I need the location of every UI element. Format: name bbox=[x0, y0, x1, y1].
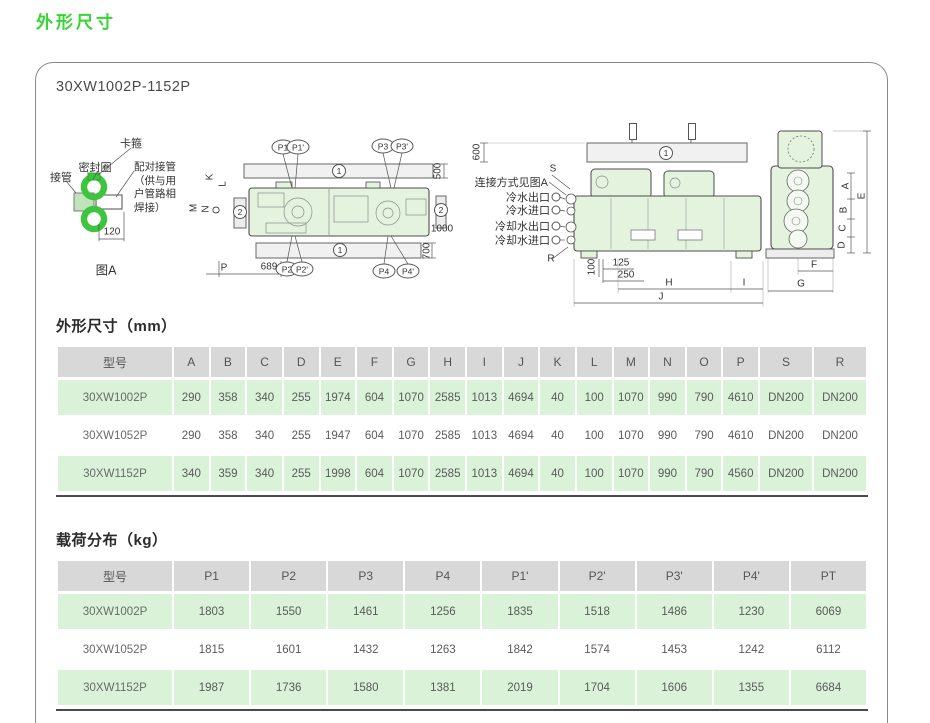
value-cell: DN200 bbox=[760, 380, 812, 415]
page-title: 外形尺寸 bbox=[36, 8, 116, 33]
value-cell: 2585 bbox=[430, 418, 465, 453]
load-point-p2p-callout: P2' bbox=[291, 262, 314, 277]
model-cell: 30XW1152P bbox=[58, 670, 172, 705]
value-cell: 40 bbox=[540, 380, 575, 415]
column-header: P bbox=[723, 347, 758, 377]
model-cell: 30XW1002P bbox=[58, 380, 172, 415]
catalog-page: 外形尺寸 30XW1002P-1152P bbox=[0, 0, 930, 723]
dim-letter-o: O bbox=[212, 206, 223, 214]
dim-letter-m: M bbox=[189, 204, 200, 212]
column-header: 型号 bbox=[58, 347, 172, 377]
value-cell: 100 bbox=[577, 418, 612, 453]
value-cell: 1013 bbox=[467, 380, 502, 415]
lifting-point-icon bbox=[629, 123, 637, 140]
dim-letter-j: J bbox=[659, 292, 664, 303]
value-cell: 1486 bbox=[637, 594, 712, 629]
value-cell: 358 bbox=[211, 418, 246, 453]
dim-letter-e: E bbox=[857, 193, 868, 200]
value-cell: 1070 bbox=[394, 456, 429, 491]
value-cell: DN200 bbox=[760, 456, 812, 491]
value-cell: 1835 bbox=[482, 594, 557, 629]
dim-letter-k: K bbox=[205, 174, 216, 181]
value-cell: 1947 bbox=[321, 418, 356, 453]
value-cell: 100 bbox=[577, 380, 612, 415]
value-cell: 6684 bbox=[791, 670, 866, 705]
column-header: P4 bbox=[405, 561, 480, 591]
value-cell: 990 bbox=[650, 418, 685, 453]
value-cell: 1355 bbox=[714, 670, 789, 705]
value-cell: 1263 bbox=[405, 632, 480, 667]
column-header: S bbox=[760, 347, 812, 377]
value-cell: 1070 bbox=[614, 456, 649, 491]
value-cell: 790 bbox=[687, 456, 722, 491]
value-cell: 6069 bbox=[791, 594, 866, 629]
value-cell: 1998 bbox=[321, 456, 356, 491]
column-header: P1' bbox=[482, 561, 557, 591]
column-header: P3' bbox=[637, 561, 712, 591]
dim-letter-i: I bbox=[743, 278, 746, 289]
column-header: P3 bbox=[328, 561, 403, 591]
column-header: A bbox=[174, 347, 209, 377]
column-header: N bbox=[650, 347, 685, 377]
rail-marker-icon: 1 bbox=[333, 243, 347, 257]
port-icon bbox=[552, 236, 561, 245]
value-cell: 255 bbox=[284, 456, 319, 491]
model-cell: 30XW1152P bbox=[58, 456, 172, 491]
dim-letter-f: F bbox=[811, 260, 817, 271]
value-cell: DN200 bbox=[814, 380, 866, 415]
dim-letter-l: L bbox=[218, 181, 229, 187]
value-cell: 1842 bbox=[482, 632, 557, 667]
value-cell: 4610 bbox=[723, 380, 758, 415]
dim-700-label: 700 bbox=[422, 243, 433, 260]
value-cell: 1070 bbox=[394, 380, 429, 415]
value-cell: 4610 bbox=[723, 418, 758, 453]
value-cell: 790 bbox=[687, 380, 722, 415]
value-cell: 1987 bbox=[174, 670, 249, 705]
dim-125-label: 125 bbox=[613, 258, 630, 269]
technical-drawing: 卡箍 密封圈 接管 配对接管 （供与用 户管路相 焊接） 120 图A P1 P… bbox=[36, 111, 887, 316]
value-cell: 4560 bbox=[723, 456, 758, 491]
dim-letter-r: R bbox=[547, 254, 554, 265]
dim-letter-c: C bbox=[838, 224, 849, 231]
dim-100-label: 100 bbox=[587, 259, 598, 276]
load-table: 型号P1P2P3P4P1'P2'P3'P4'PT30XW1002P1803155… bbox=[56, 558, 868, 711]
pad-marker-icon: 2 bbox=[434, 203, 448, 217]
column-header: P2' bbox=[560, 561, 635, 591]
table-row: 30XW1002P1803155014611256183515181486123… bbox=[58, 594, 866, 629]
value-cell: 340 bbox=[247, 418, 282, 453]
model-cell: 30XW1002P bbox=[58, 594, 172, 629]
cooling-water-inlet-label: 冷却水进口 bbox=[495, 232, 550, 248]
value-cell: 1606 bbox=[637, 670, 712, 705]
value-cell: 604 bbox=[357, 456, 392, 491]
column-header: R bbox=[814, 347, 866, 377]
column-header: L bbox=[577, 347, 612, 377]
value-cell: 1453 bbox=[637, 632, 712, 667]
table-row: 30XW1152P1987173615801381201917041606135… bbox=[58, 670, 866, 705]
dim-letter-g: G bbox=[797, 279, 805, 290]
clamp-label: 卡箍 bbox=[120, 135, 142, 151]
pad-marker-icon: 2 bbox=[233, 205, 247, 219]
column-header: O bbox=[687, 347, 722, 377]
value-cell: 1550 bbox=[251, 594, 326, 629]
dim-letter-a: A bbox=[841, 183, 852, 190]
figure-a-caption: 图A bbox=[96, 260, 117, 279]
rail-marker-icon: 1 bbox=[332, 164, 346, 178]
value-cell: 255 bbox=[284, 380, 319, 415]
dimensions-table-title: 外形尺寸（mm） bbox=[56, 315, 177, 336]
value-cell: 1256 bbox=[405, 594, 480, 629]
load-point-p1p-callout: P1' bbox=[287, 140, 310, 155]
dim-letter-n: N bbox=[201, 205, 212, 212]
value-cell: 255 bbox=[284, 418, 319, 453]
column-header: F bbox=[357, 347, 392, 377]
value-cell: 790 bbox=[687, 418, 722, 453]
value-cell: 100 bbox=[577, 456, 612, 491]
value-cell: 1815 bbox=[174, 632, 249, 667]
chilled-water-inlet-label: 冷水进口 bbox=[506, 202, 550, 218]
dim-letter-d: D bbox=[837, 241, 848, 248]
value-cell: 358 bbox=[211, 380, 246, 415]
port-icon bbox=[552, 206, 561, 215]
column-header: G bbox=[394, 347, 429, 377]
table-row: 30XW1052P2903583402551947604107025851013… bbox=[58, 418, 866, 453]
end-view-drawing bbox=[766, 131, 871, 293]
value-cell: 4694 bbox=[504, 456, 539, 491]
rail-marker-icon: 1 bbox=[659, 146, 673, 160]
port-icon bbox=[552, 193, 561, 202]
model-cell: 30XW1052P bbox=[58, 418, 172, 453]
value-cell: 1013 bbox=[467, 418, 502, 453]
column-header: B bbox=[211, 347, 246, 377]
column-header: PT bbox=[791, 561, 866, 591]
pipe-label: 接管 bbox=[50, 169, 72, 185]
model-range-label: 30XW1002P-1152P bbox=[56, 79, 191, 95]
value-cell: 2019 bbox=[482, 670, 557, 705]
load-point-p4-callout: P4 bbox=[373, 264, 396, 279]
value-cell: 340 bbox=[247, 380, 282, 415]
table-row: 30XW1052P1815160114321263184215741453124… bbox=[58, 632, 866, 667]
column-header: P4' bbox=[714, 561, 789, 591]
column-header: I bbox=[467, 347, 502, 377]
seal-ring-label: 密封圈 bbox=[79, 159, 112, 175]
value-cell: 1013 bbox=[467, 456, 502, 491]
value-cell: 40 bbox=[540, 418, 575, 453]
value-cell: 40 bbox=[540, 456, 575, 491]
column-header: P2 bbox=[251, 561, 326, 591]
dim-letter-s: S bbox=[550, 164, 557, 175]
load-table-grid: 型号P1P2P3P4P1'P2'P3'P4'PT30XW1002P1803155… bbox=[56, 558, 868, 708]
column-header: M bbox=[614, 347, 649, 377]
column-header: 型号 bbox=[58, 561, 172, 591]
column-header: D bbox=[284, 347, 319, 377]
dim-120-label: 120 bbox=[104, 227, 121, 238]
table-row: 30XW1002P2903583402551974604107025851013… bbox=[58, 380, 866, 415]
value-cell: 1230 bbox=[714, 594, 789, 629]
column-header: P1 bbox=[174, 561, 249, 591]
value-cell: 2585 bbox=[430, 456, 465, 491]
port-icon bbox=[552, 222, 561, 231]
value-cell: 1381 bbox=[405, 670, 480, 705]
value-cell: 1432 bbox=[328, 632, 403, 667]
value-cell: 1736 bbox=[251, 670, 326, 705]
dim-250-label: 250 bbox=[618, 270, 635, 281]
dim-letter-h: H bbox=[665, 278, 672, 289]
dim-500-label: 500 bbox=[433, 163, 444, 180]
load-point-p3p-callout: P3' bbox=[391, 139, 414, 154]
value-cell: 1070 bbox=[614, 418, 649, 453]
value-cell: 2585 bbox=[430, 380, 465, 415]
dim-1000-label: 1000 bbox=[431, 224, 453, 235]
value-cell: 4694 bbox=[504, 380, 539, 415]
content-panel: 30XW1002P-1152P bbox=[35, 62, 888, 723]
model-cell: 30XW1052P bbox=[58, 632, 172, 667]
value-cell: 1574 bbox=[560, 632, 635, 667]
column-header: C bbox=[247, 347, 282, 377]
value-cell: DN200 bbox=[814, 418, 866, 453]
value-cell: 1070 bbox=[394, 418, 429, 453]
value-cell: 340 bbox=[174, 456, 209, 491]
value-cell: 6112 bbox=[791, 632, 866, 667]
dim-600-label: 600 bbox=[472, 144, 483, 161]
value-cell: 1580 bbox=[328, 670, 403, 705]
value-cell: 290 bbox=[174, 418, 209, 453]
value-cell: 990 bbox=[650, 456, 685, 491]
value-cell: 1518 bbox=[560, 594, 635, 629]
connection-note-label: 连接方式见图A bbox=[475, 174, 548, 190]
load-point-p4p-callout: P4' bbox=[397, 264, 420, 279]
value-cell: DN200 bbox=[760, 418, 812, 453]
header-row: 型号ABCDEFGHIJKLMNOPSR bbox=[58, 347, 866, 377]
lifting-point-icon bbox=[688, 123, 696, 140]
value-cell: 290 bbox=[174, 380, 209, 415]
header-row: 型号P1P2P3P4P1'P2'P3'P4'PT bbox=[58, 561, 866, 591]
value-cell: 604 bbox=[357, 418, 392, 453]
dim-letter-b: B bbox=[839, 207, 850, 214]
value-cell: 359 bbox=[211, 456, 246, 491]
value-cell: 4694 bbox=[504, 418, 539, 453]
dim-letter-p: P bbox=[221, 263, 228, 274]
value-cell: 1803 bbox=[174, 594, 249, 629]
value-cell: 604 bbox=[357, 380, 392, 415]
value-cell: DN200 bbox=[814, 456, 866, 491]
column-header: K bbox=[540, 347, 575, 377]
value-cell: 1070 bbox=[614, 380, 649, 415]
dim-689-label: 689 bbox=[261, 262, 278, 273]
value-cell: 1704 bbox=[560, 670, 635, 705]
value-cell: 1461 bbox=[328, 594, 403, 629]
value-cell: 990 bbox=[650, 380, 685, 415]
load-table-title: 载荷分布（kg） bbox=[56, 529, 168, 550]
value-cell: 340 bbox=[247, 456, 282, 491]
dimensions-table: 型号ABCDEFGHIJKLMNOPSR30XW1002P29035834025… bbox=[56, 344, 868, 497]
value-cell: 1242 bbox=[714, 632, 789, 667]
value-cell: 1974 bbox=[321, 380, 356, 415]
column-header: H bbox=[430, 347, 465, 377]
table-row: 30XW1152P3403593402551998604107025851013… bbox=[58, 456, 866, 491]
column-header: J bbox=[504, 347, 539, 377]
value-cell: 1601 bbox=[251, 632, 326, 667]
mating-pipe-label: 配对接管 （供与用 户管路相 焊接） bbox=[134, 161, 176, 216]
column-header: E bbox=[321, 347, 356, 377]
dimensions-table-grid: 型号ABCDEFGHIJKLMNOPSR30XW1002P29035834025… bbox=[56, 344, 868, 494]
